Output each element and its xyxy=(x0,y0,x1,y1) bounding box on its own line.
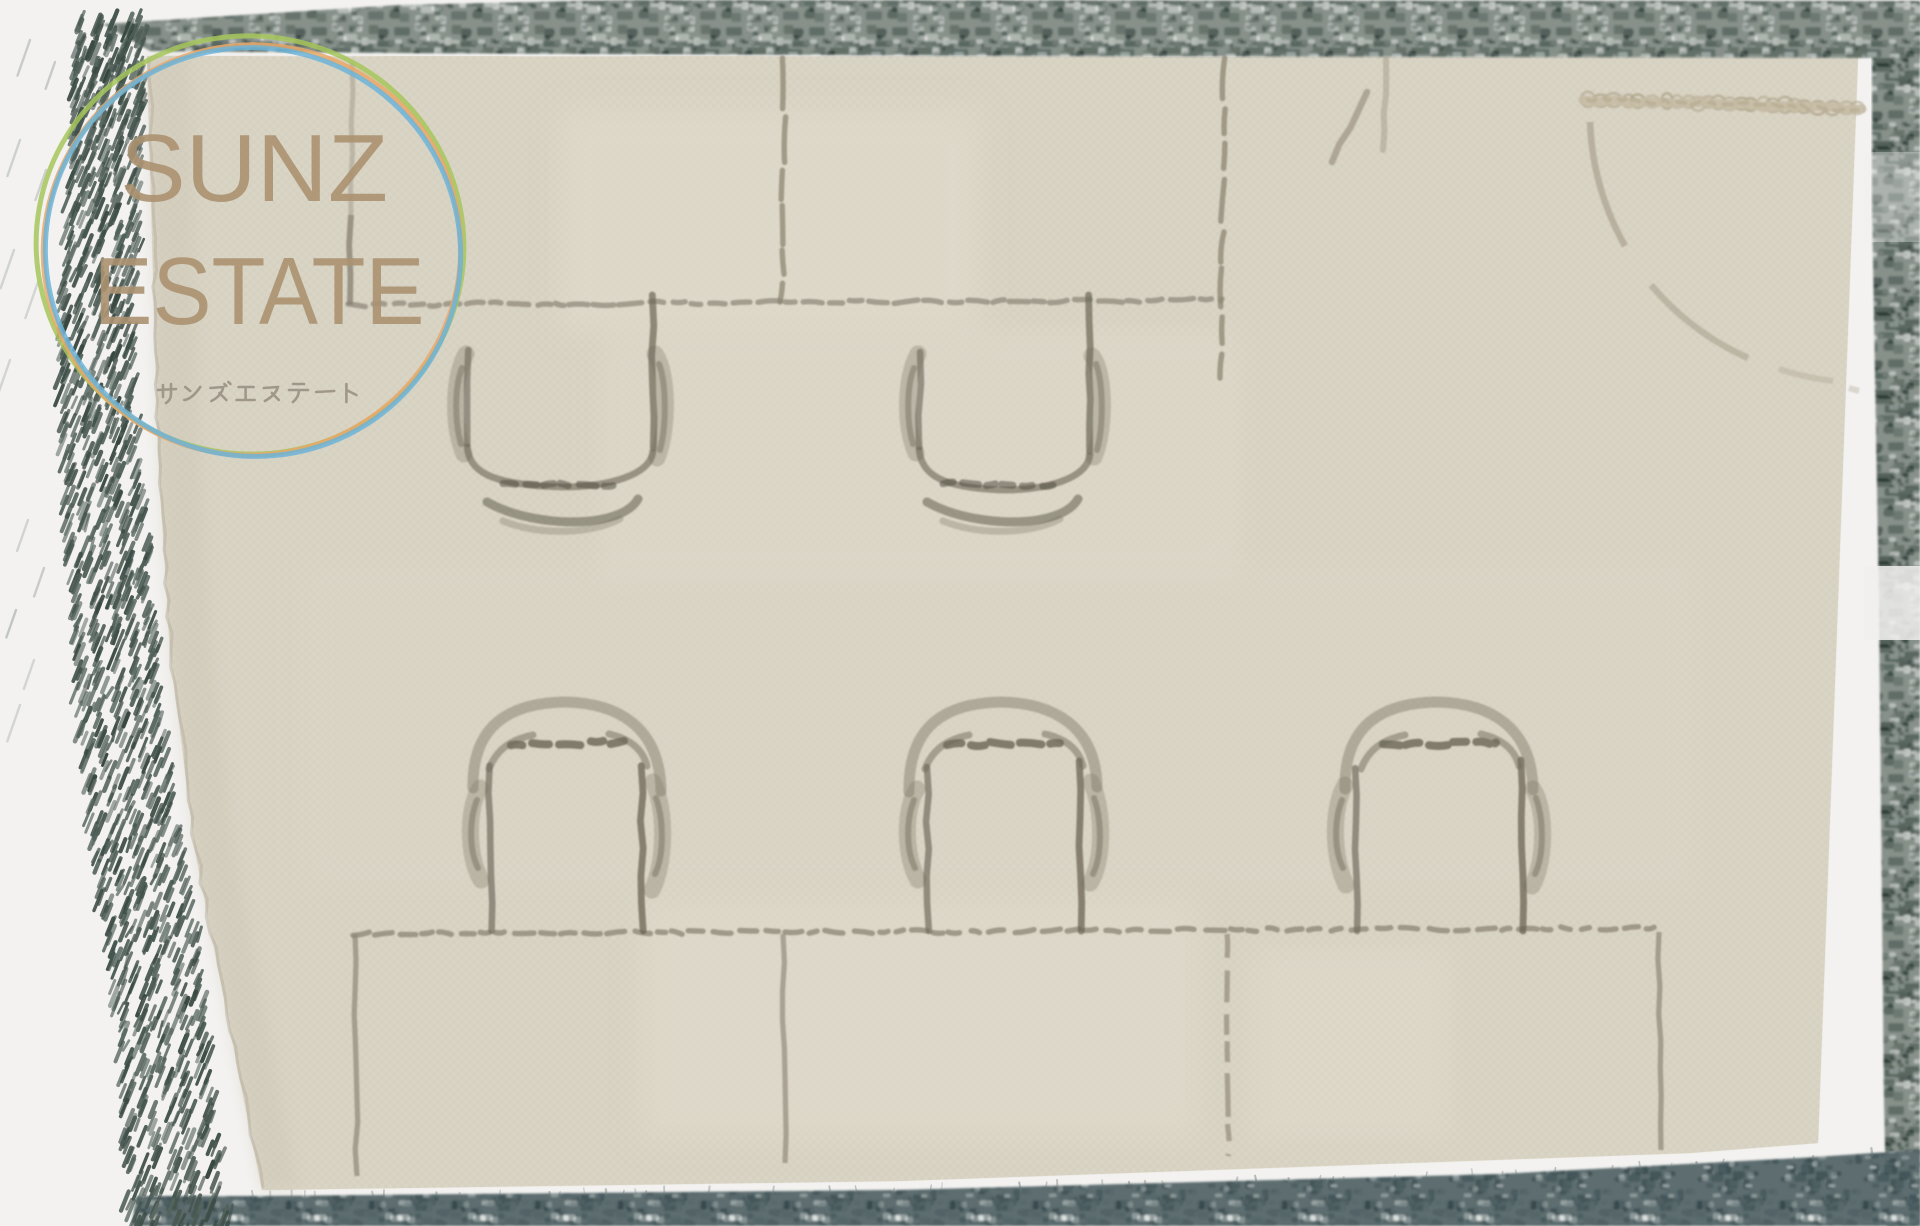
svg-text:SUNZ: SUNZ xyxy=(120,115,388,222)
svg-text:ESTATE: ESTATE xyxy=(94,238,425,345)
